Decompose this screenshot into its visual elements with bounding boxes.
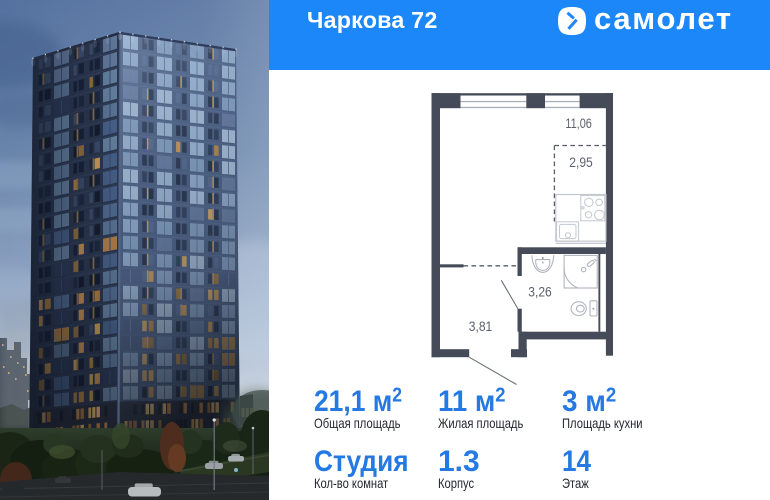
svg-text:3,26: 3,26 <box>528 285 552 300</box>
svg-text:2,95: 2,95 <box>569 155 593 170</box>
svg-text:11,06: 11,06 <box>565 116 592 131</box>
svg-text:3,81: 3,81 <box>469 319 493 334</box>
